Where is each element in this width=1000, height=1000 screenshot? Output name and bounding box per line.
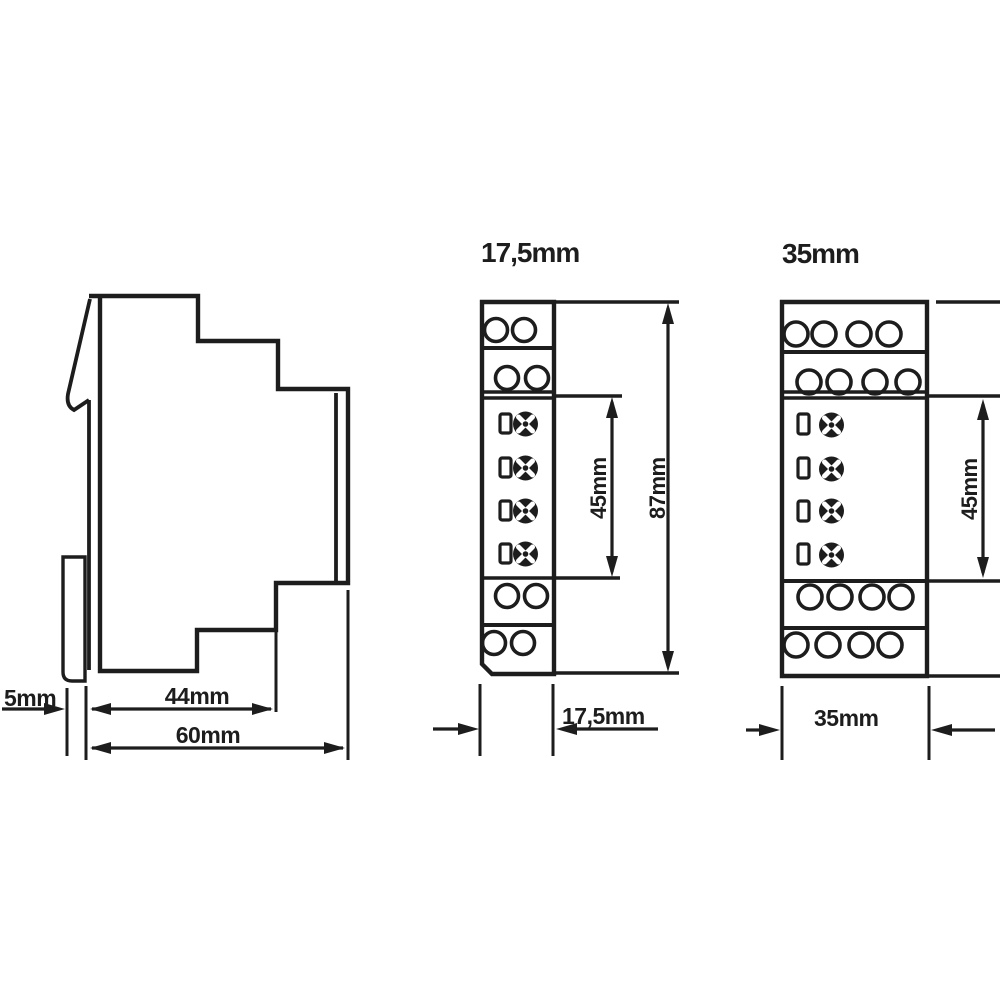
- module-outline: [782, 302, 927, 676]
- adjust-knob-icon: [819, 543, 844, 568]
- adjust-knob-icon: [819, 413, 844, 438]
- arrowhead: [931, 724, 952, 736]
- side-view: 5mm 44mm 60mm: [2, 296, 348, 760]
- dimension-label-width: 17,5mm: [562, 703, 645, 729]
- arrowhead: [606, 397, 618, 418]
- module-outline: [482, 302, 554, 674]
- module-width-title: 35mm: [782, 238, 859, 269]
- arrowhead: [977, 557, 989, 578]
- arrowhead: [759, 724, 780, 736]
- arrowhead: [977, 399, 989, 420]
- side-outline: [89, 296, 348, 671]
- arrowhead: [90, 703, 111, 715]
- front-view-wide-module: 35mm: [746, 238, 1000, 760]
- adjust-knob-icon: [513, 542, 538, 567]
- arrowhead: [252, 703, 273, 715]
- module-width-title: 17,5mm: [481, 237, 579, 268]
- arrowhead: [90, 742, 111, 754]
- dimension-label-body-height: 45mm: [586, 457, 611, 519]
- adjust-knob-icon: [819, 499, 844, 524]
- arrowhead: [662, 651, 674, 672]
- arrowhead: [606, 556, 618, 577]
- din-clip-hook: [68, 299, 90, 410]
- dimension-label-width: 35mm: [814, 705, 879, 731]
- arrowhead: [662, 303, 674, 324]
- arrowhead: [324, 742, 345, 754]
- front-view-narrow-module: 17,5mm 45mm: [433, 237, 679, 756]
- dimension-label-total-depth: 60mm: [176, 722, 241, 748]
- adjust-knob-icon: [513, 456, 538, 481]
- adjust-knob-icon: [513, 412, 538, 437]
- technical-drawing-page: 5mm 44mm 60mm 17,5mm: [0, 0, 1000, 1000]
- adjust-knob-icon: [819, 457, 844, 482]
- dimension-label-body-height: 45mm: [957, 458, 982, 520]
- dimension-label-total-height: 87mm: [645, 457, 670, 519]
- dimensional-drawing: 5mm 44mm 60mm 17,5mm: [0, 0, 1000, 1000]
- dimension-label-rail: 5mm: [4, 685, 56, 711]
- dimension-label-body-depth: 44mm: [165, 683, 230, 709]
- arrowhead: [458, 723, 479, 735]
- din-latch: [63, 557, 85, 681]
- adjust-knob-icon: [513, 499, 538, 524]
